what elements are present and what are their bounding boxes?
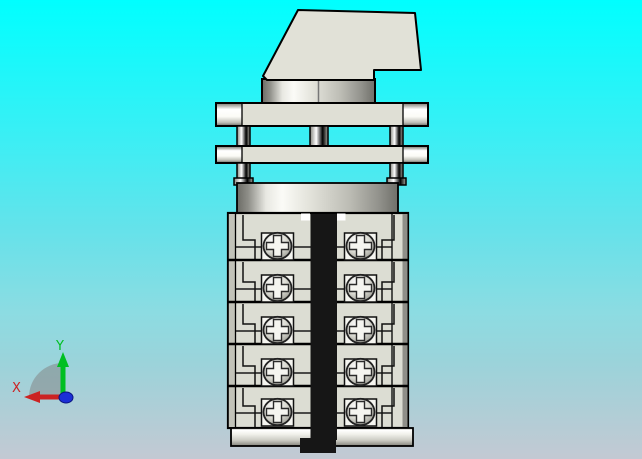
lower-post-left[interactable] (237, 163, 250, 179)
top-plate-left-end (217, 104, 242, 125)
cad-viewport[interactable]: X Y (0, 0, 642, 459)
axis-triad: X Y (12, 339, 73, 403)
switch-model[interactable] (216, 10, 428, 453)
switch-body-cylinder[interactable] (237, 183, 398, 214)
y-axis-arrowhead-icon (57, 352, 69, 367)
center-strip-foot (300, 438, 336, 453)
spacer-post-left[interactable] (237, 126, 250, 146)
lower-posts[interactable] (234, 163, 406, 185)
top-mounting-plate[interactable] (216, 103, 428, 126)
bottom-plate-face[interactable] (216, 146, 428, 163)
strip-top-highlight-right (337, 214, 346, 221)
triad-shadow-wedge (29, 363, 63, 397)
strip-top-highlight-left (301, 214, 310, 221)
axis-x-label: X (12, 381, 21, 396)
handle-collar[interactable] (262, 79, 375, 105)
cad-canvas[interactable]: X Y (0, 0, 642, 459)
top-plate-face[interactable] (216, 103, 428, 126)
stack-right-side-band (403, 214, 408, 427)
bottom-plate-left-end (217, 147, 242, 162)
bottom-mounting-plate[interactable] (216, 146, 428, 163)
stack-left-side-band (229, 214, 236, 427)
z-axis-dot-icon (59, 392, 73, 403)
bottom-plate-right-end (403, 147, 427, 162)
top-plate-right-end (403, 104, 427, 125)
center-strip[interactable] (311, 214, 338, 440)
spacer-post-center[interactable] (310, 126, 328, 146)
handle-lever[interactable] (263, 10, 421, 80)
lower-post-right[interactable] (390, 163, 403, 179)
axis-y-label: Y (55, 339, 64, 354)
spacer-post-right[interactable] (390, 126, 403, 146)
spacer-posts[interactable] (237, 126, 403, 146)
